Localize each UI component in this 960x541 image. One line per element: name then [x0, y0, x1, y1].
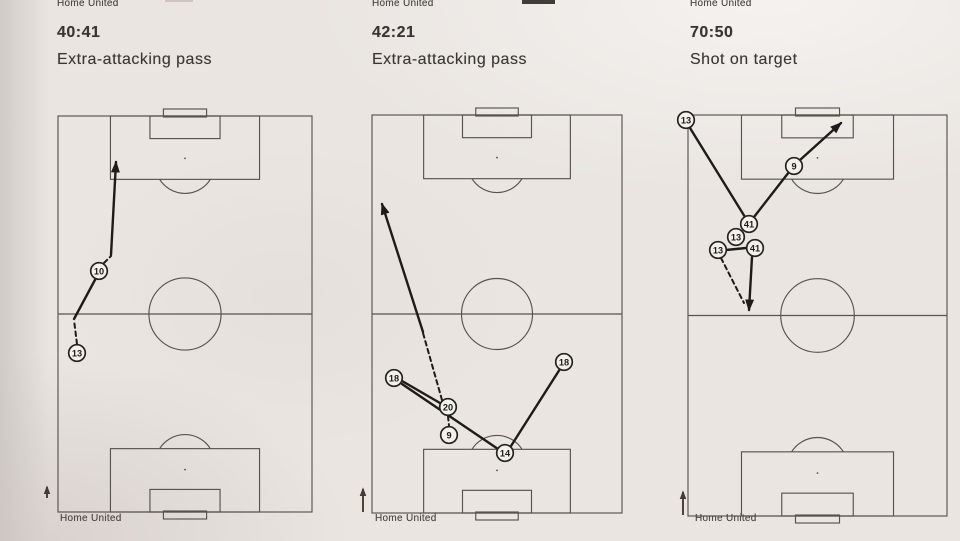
event-time: 42:21 [372, 24, 415, 42]
player-number: 9 [446, 430, 451, 440]
player-marker: 41 [747, 240, 764, 257]
player-marker: 13 [678, 112, 695, 129]
team-label-top: Home United [57, 0, 119, 9]
team-label-bottom: Home United [60, 513, 122, 524]
match-report-page: 101318209141813411341139 Home United 40:… [0, 0, 960, 541]
penalty-area [110, 449, 259, 512]
player-number: 13 [72, 348, 82, 358]
goal-area [150, 489, 220, 512]
carry-line [423, 333, 442, 400]
event-type: Extra-attacking pass [372, 51, 527, 69]
player-marker: 9 [786, 158, 803, 175]
penalty-spot [817, 472, 819, 474]
player-number: 18 [389, 373, 399, 383]
event-type: Shot on target [690, 51, 798, 69]
player-marker: 13 [69, 345, 86, 362]
player-number: 9 [791, 161, 796, 171]
player-number: 20 [443, 402, 453, 412]
penalty-arc [792, 179, 844, 193]
penalty-spot [817, 157, 819, 159]
carry-line [448, 416, 449, 426]
penalty-arc [160, 179, 211, 193]
goal-area [782, 493, 853, 516]
carry-line [74, 320, 77, 344]
player-marker: 41 [741, 216, 758, 233]
team-label-top: Home United [372, 0, 434, 9]
goal-area [463, 115, 532, 138]
goal-area [463, 490, 532, 513]
pass-line [726, 248, 746, 250]
player-marker: 13 [710, 242, 727, 259]
penalty-arc [472, 179, 522, 193]
player-number: 13 [681, 115, 691, 125]
penalty-spot [184, 157, 186, 159]
pass-line [690, 128, 745, 217]
penalty-area [741, 452, 893, 516]
player-number: 10 [94, 266, 104, 276]
pass-arrow [382, 204, 423, 332]
goal-area [150, 116, 220, 139]
penalty-area [424, 115, 571, 179]
event-time: 70:50 [690, 24, 733, 42]
pass-line [511, 369, 560, 446]
pass-line [402, 381, 440, 403]
pass-arrow [111, 162, 116, 255]
player-marker: 13 [728, 229, 745, 246]
player-number: 13 [713, 245, 723, 255]
player-marker: 9 [441, 427, 458, 444]
player-marker: 14 [497, 445, 514, 462]
player-marker: 10 [91, 263, 108, 280]
pitch-diagrams-canvas: 101318209141813411341139 [0, 0, 960, 541]
pass-arrow [749, 257, 752, 310]
penalty-arc [160, 435, 211, 449]
pass-line [74, 278, 96, 319]
goal-area [782, 115, 853, 138]
penalty-area [110, 116, 259, 179]
player-number: 18 [559, 357, 569, 367]
pitch-diagram [688, 108, 947, 523]
pitch-diagram [372, 108, 622, 520]
team-label-bottom: Home United [695, 513, 757, 524]
penalty-arc [792, 438, 844, 452]
penalty-spot [496, 470, 498, 472]
penalty-area [741, 115, 893, 179]
shot-arrow [800, 123, 841, 160]
page-artifact [522, 0, 555, 4]
player-number: 41 [750, 243, 760, 253]
penalty-area [424, 449, 571, 513]
page-artifact [165, 0, 193, 2]
player-marker: 20 [440, 399, 457, 416]
penalty-spot [496, 157, 498, 159]
player-number: 41 [744, 219, 754, 229]
event-type: Extra-attacking pass [57, 51, 212, 69]
pitch-diagram [58, 109, 312, 519]
player-marker: 18 [386, 370, 403, 387]
carry-line [104, 256, 111, 263]
team-label-bottom: Home United [375, 513, 437, 524]
player-marker: 18 [556, 354, 573, 371]
player-number: 14 [500, 448, 511, 458]
penalty-spot [184, 469, 186, 471]
carry-line [721, 258, 744, 303]
event-time: 40:41 [57, 24, 100, 42]
team-label-top: Home United [690, 0, 752, 9]
player-number: 13 [731, 232, 741, 242]
